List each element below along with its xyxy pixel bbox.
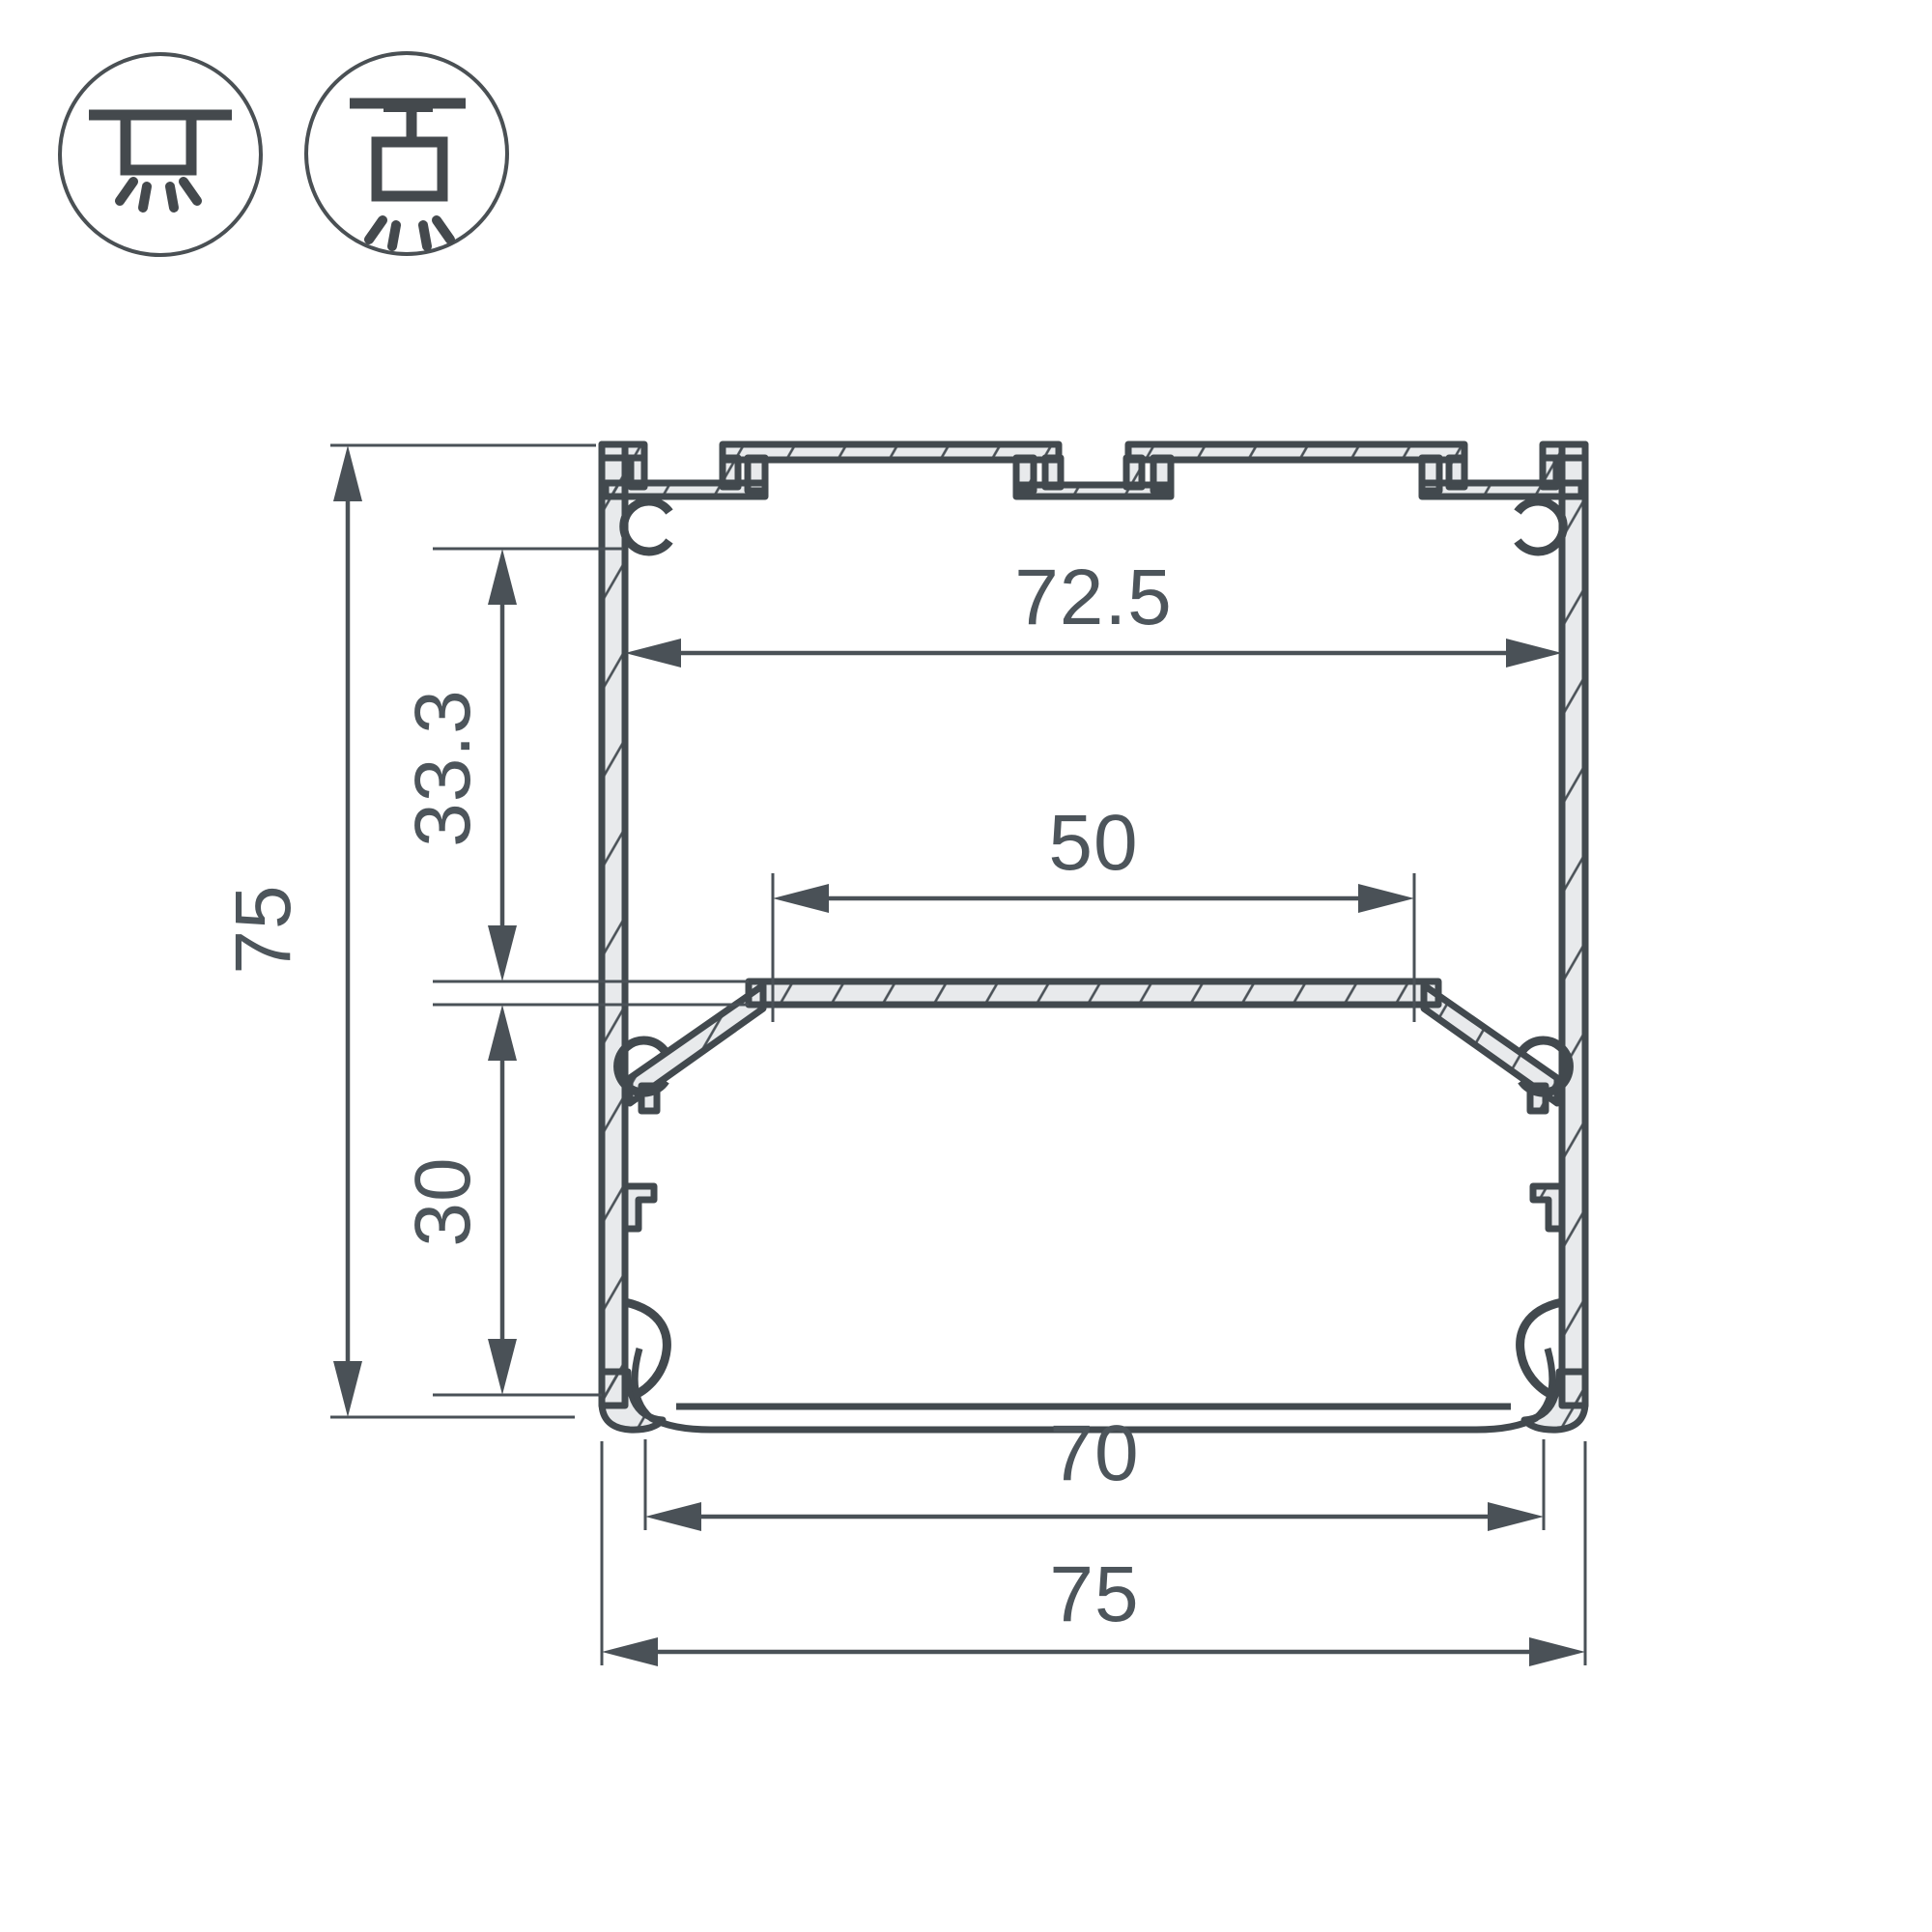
dimension-upper-inner-height: 33.3	[399, 549, 749, 1005]
top-inner-width-label: 72.5	[1014, 554, 1173, 641]
overall-height-label: 75	[219, 884, 307, 974]
dimension-top-inner-width: 72.5	[625, 554, 1562, 668]
light-rays-icon	[369, 220, 450, 246]
dimension-lower-inner-height: 30	[399, 1005, 602, 1395]
drawing-canvas: 75 33.3 30 72.5	[0, 0, 1932, 1932]
pendant-mount-icon	[306, 53, 507, 254]
light-rays-icon	[120, 182, 197, 208]
dimension-overall-height: 75	[219, 445, 596, 1417]
dimension-annotations: 75 33.3 30 72.5	[219, 445, 1585, 1666]
diffuser-clip	[625, 1302, 1562, 1397]
upper-inner-height-label: 33.3	[399, 689, 487, 847]
bottom-opening-width-label: 70	[1049, 1409, 1139, 1497]
overall-width-label: 75	[1049, 1550, 1139, 1638]
led-platform-width-label: 50	[1048, 799, 1138, 887]
technical-drawing-page: 75 33.3 30 72.5	[0, 0, 1932, 1932]
lower-inner-height-label: 30	[399, 1156, 487, 1246]
surface-mount-icon	[60, 54, 261, 255]
